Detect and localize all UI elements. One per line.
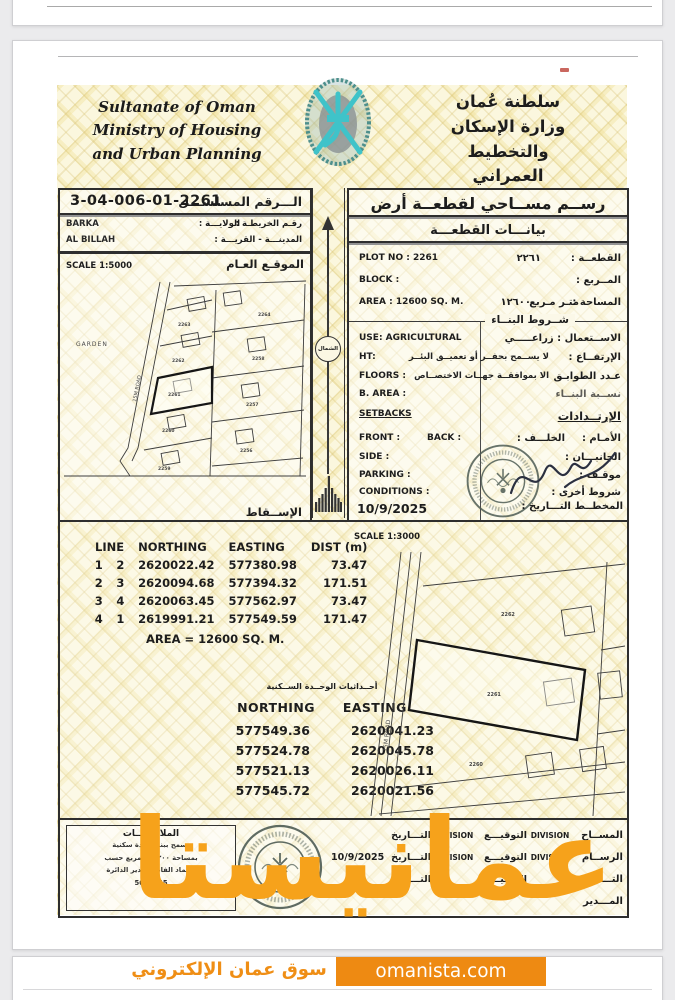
listing-photo-page: Sultanate of Oman Ministry of Housing an… <box>0 0 675 1000</box>
header-ar-line3: والتخطيط العمراني <box>438 140 578 190</box>
cell: 577562.97 <box>221 592 303 610</box>
plot-number-label: 2260 <box>162 428 175 434</box>
cell: 4 <box>88 610 110 628</box>
area-label-ar: المساحة : <box>572 297 621 308</box>
cell: 2620094.68 <box>131 574 221 592</box>
previous-photo-card <box>12 0 663 26</box>
floors-en: FLOORS : <box>359 371 406 381</box>
cell: 4 <box>110 592 132 610</box>
plot-survey-drawing: 2262 2261 2260 15M ROAD <box>367 552 625 816</box>
card-edge-line <box>47 6 652 7</box>
road-label: 15M ROAD <box>132 375 143 403</box>
plot-number-label: 2256 <box>240 448 253 454</box>
oman-national-emblem-icon <box>302 76 374 172</box>
unit-col-northing: NORTHING <box>237 700 315 715</box>
height-label-ar: الإرتفــاع : <box>569 352 622 363</box>
header-en-line2: Ministry of Housing <box>72 119 282 142</box>
height-en: HT: <box>359 352 376 362</box>
cell: 2 <box>110 556 132 574</box>
plot-number-label: 2257 <box>246 402 259 408</box>
graphic-scale-bars-icon <box>314 472 342 512</box>
map-number-label: رقـم الخريطـة : <box>236 219 302 229</box>
table-row: 1 2 2620022.42 577380.98 73.47 <box>88 556 374 574</box>
header-ar-line2: وزارة الإسكان <box>438 115 578 140</box>
scan-page-edge <box>58 56 638 57</box>
header-en-line1: Sultanate of Oman <box>72 96 282 119</box>
conditions-en: CONDITIONS : <box>359 487 430 497</box>
table-row: 4 1 2619991.21 577549.59 171.47 <box>88 610 374 628</box>
use-label-ar: الاســتعمال : زراعـــــي <box>505 333 621 344</box>
cell: 73.47 <box>304 592 374 610</box>
area-en: AREA : 12600 SQ. M. <box>359 297 463 307</box>
plot-label-ar: القطعــة : <box>571 253 621 264</box>
road-label: 15M ROAD <box>382 719 392 752</box>
plot-data-subtitle: بيانـــات القطعـــة <box>430 223 546 238</box>
building-area-en: B. AREA : <box>359 389 406 399</box>
cell: 2 <box>88 574 110 592</box>
plot-number-label: 2261 <box>487 692 501 698</box>
north-axis-line <box>327 274 329 474</box>
omanista-watermark: عمانيستا <box>85 790 660 930</box>
plot-number-label: 2260 <box>469 762 483 768</box>
plot-number-label: 2261 <box>168 392 181 398</box>
location-box: BARKA الولايـــة : رقـم الخريطـة : AL BI… <box>58 213 312 253</box>
town-label: المدينـــة - القريـــة : <box>214 235 302 245</box>
site-plan-drawing: 2263 2262 2261 2260 2259 2264 2258 2257 … <box>62 280 308 498</box>
front-en: FRONT : <box>359 433 400 443</box>
block-en: BLOCK : <box>359 275 399 285</box>
date-label-ar: التـــاريخ : <box>522 501 571 512</box>
col-header-easting: EASTING <box>221 538 303 556</box>
building-area-label-ar: نســبة البنــاء <box>556 389 621 400</box>
building-terms-label: شــروط البنــاء <box>485 314 575 326</box>
north-arrow-icon <box>321 216 335 276</box>
cell: 171.51 <box>304 574 374 592</box>
cell: 3 <box>88 592 110 610</box>
site-plan-label: الموقـع العـام <box>226 257 304 271</box>
ministry-title-arabic: سلطنة عُمان وزارة الإسكان والتخطيط العمر… <box>438 90 578 189</box>
projection-label: الإســقاط <box>246 505 302 519</box>
site-plan-box: SCALE 1:5000 الموقـع العـام <box>58 252 312 522</box>
plot-no-ar-value: ٢٢٦١ <box>517 253 541 264</box>
area-ar-value: ١٢٦٠٠ <box>500 297 531 308</box>
floors-label-ar: عـدد الطوابـق <box>554 371 621 382</box>
col-header-dist: DIST (m) <box>304 538 374 556</box>
cell: 577521.13 <box>210 761 310 781</box>
serial-number-label: الـــرقم المسلســـل <box>178 194 302 209</box>
site-plan-scale: SCALE 1:5000 <box>66 261 132 271</box>
planner-label-ar: المخطــط : <box>567 501 623 512</box>
red-ink-mark <box>560 68 569 72</box>
omanista-site-badge[interactable]: omanista.com <box>336 957 546 986</box>
back-en: BACK : <box>427 433 461 443</box>
cell: 577524.78 <box>210 741 310 761</box>
document-title: رســم مســاحي لقطعــة أرض <box>371 194 606 213</box>
cell: 73.47 <box>304 556 374 574</box>
cell: 577549.36 <box>210 721 310 741</box>
plot-number-label: 2258 <box>252 356 265 362</box>
plot-data-box: PLOT NO : 2261 ٢٢٦١ القطعــة : BLOCK : ا… <box>347 241 629 522</box>
plot-number-label: 2263 <box>178 322 191 328</box>
north-label: الشمال <box>318 346 338 352</box>
cell: 2619991.21 <box>131 610 221 628</box>
cell: 1 <box>88 556 110 574</box>
garden-label: GARDEN <box>76 341 108 348</box>
plan-date-value: 10/9/2025 <box>357 501 427 516</box>
parking-en: PARKING : <box>359 470 411 480</box>
planner-signature <box>507 447 619 505</box>
omanista-tagline: سوق عمان الإلكتروني <box>128 959 330 980</box>
area-total-line: AREA = 12600 SQ. M. <box>146 632 284 646</box>
survey-detail-box: SCALE 1:3000 LINE NORTHING EASTING DIST … <box>58 520 629 820</box>
town-value: AL BILLAH <box>66 235 115 245</box>
cell: 1 <box>110 610 132 628</box>
header-ar-line1: سلطنة عُمان <box>438 90 578 115</box>
plot-number-label: 2264 <box>258 312 271 318</box>
side-en: SIDE : <box>359 452 389 462</box>
wilaya-label: الولايـــة : <box>199 219 240 229</box>
plot-no-en: PLOT NO : 2261 <box>359 253 438 263</box>
cell: 2620022.42 <box>131 556 221 574</box>
card-edge-line <box>23 989 652 990</box>
setbacks-label-ar: الإرتــدادات <box>558 409 621 423</box>
plot-number-label: 2262 <box>172 358 185 364</box>
setbacks-en: SETBACKS <box>359 409 412 419</box>
floors-note-ar: الا بموافقــة جهــات الاختصــاص <box>414 371 549 381</box>
use-en: USE: AGRICULTURAL <box>359 333 462 343</box>
table-row: 3 4 2620063.45 577562.97 73.47 <box>88 592 374 610</box>
col-header-line: LINE <box>88 538 131 556</box>
col-header-northing: NORTHING <box>131 538 221 556</box>
front-label-ar: الأمـام : <box>582 433 621 444</box>
cell: 3 <box>110 574 132 592</box>
cell: 577549.59 <box>221 610 303 628</box>
plot-number-label: 2262 <box>501 612 515 618</box>
cell: 577380.98 <box>221 556 303 574</box>
cell: 577394.32 <box>221 574 303 592</box>
header-en-line3: and Urban Planning <box>72 143 282 166</box>
plot-number-label: 2259 <box>158 466 171 472</box>
cell: 2620063.45 <box>131 592 221 610</box>
table-row: 2 3 2620094.68 577394.32 171.51 <box>88 574 374 592</box>
cell: 171.47 <box>304 610 374 628</box>
height-note-ar: لا يســمح بحفــر أو تعميــق البئــر <box>409 352 549 362</box>
ministry-title-english: Sultanate of Oman Ministry of Housing an… <box>72 96 282 166</box>
wilaya-value: BARKA <box>66 219 99 229</box>
north-compass-circle: الشمال <box>315 336 341 362</box>
boundary-coordinates-table: LINE NORTHING EASTING DIST (m) 1 2 26200… <box>88 538 374 628</box>
block-label-ar: المــربع : <box>576 275 621 286</box>
north-indicator-strip: الشمال <box>312 188 345 518</box>
